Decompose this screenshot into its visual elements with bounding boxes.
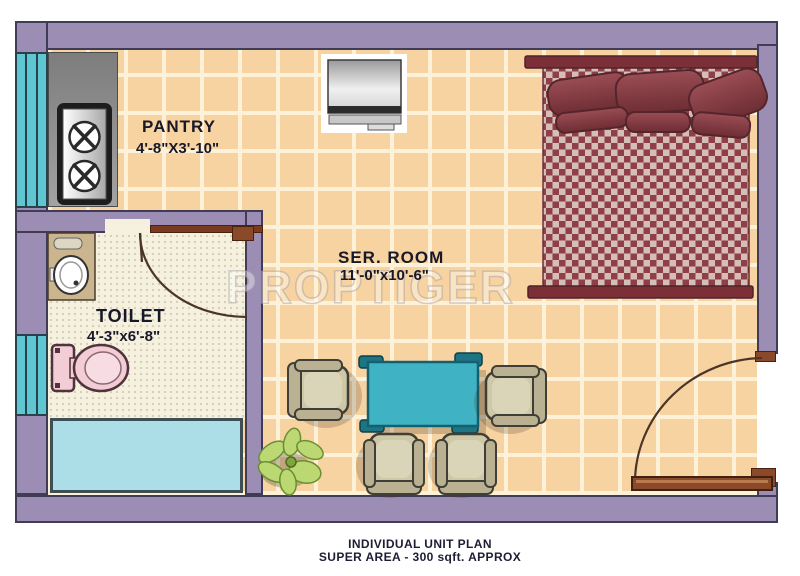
floor-plan: PROPTIGER PANTRY 4'-8"X3'-10" TOILET 4'-…: [0, 0, 800, 576]
toilet-door-opening: [105, 219, 150, 233]
toilet-label: TOILET: [96, 306, 166, 327]
wall-right-upper: [757, 44, 778, 354]
wash-area: [50, 418, 243, 493]
toilet-door-jamb: [232, 226, 254, 241]
pantry-label: PANTRY: [142, 117, 216, 137]
pantry-dimensions: 4'-8"X3'-10": [136, 140, 219, 157]
ser-room-dimensions: 11'-0"x10'-6": [340, 267, 429, 284]
ser-room-label: SER. ROOM: [338, 248, 444, 268]
wall-toilet-east: [245, 210, 263, 495]
window-icon: [15, 52, 48, 208]
wall-top: [15, 21, 778, 50]
caption-line-2: SUPER AREA - 300 sqft. APPROX: [220, 551, 620, 564]
plan-caption: INDIVIDUAL UNIT PLAN SUPER AREA - 300 sq…: [220, 538, 620, 564]
main-door-jamb-top: [755, 351, 776, 362]
wall-bottom: [15, 495, 778, 523]
window-icon: [15, 334, 48, 416]
main-door-jamb-bottom: [751, 468, 776, 487]
pantry-counter: [48, 52, 118, 207]
toilet-dimensions: 4'-3"x6'-8": [87, 328, 160, 345]
